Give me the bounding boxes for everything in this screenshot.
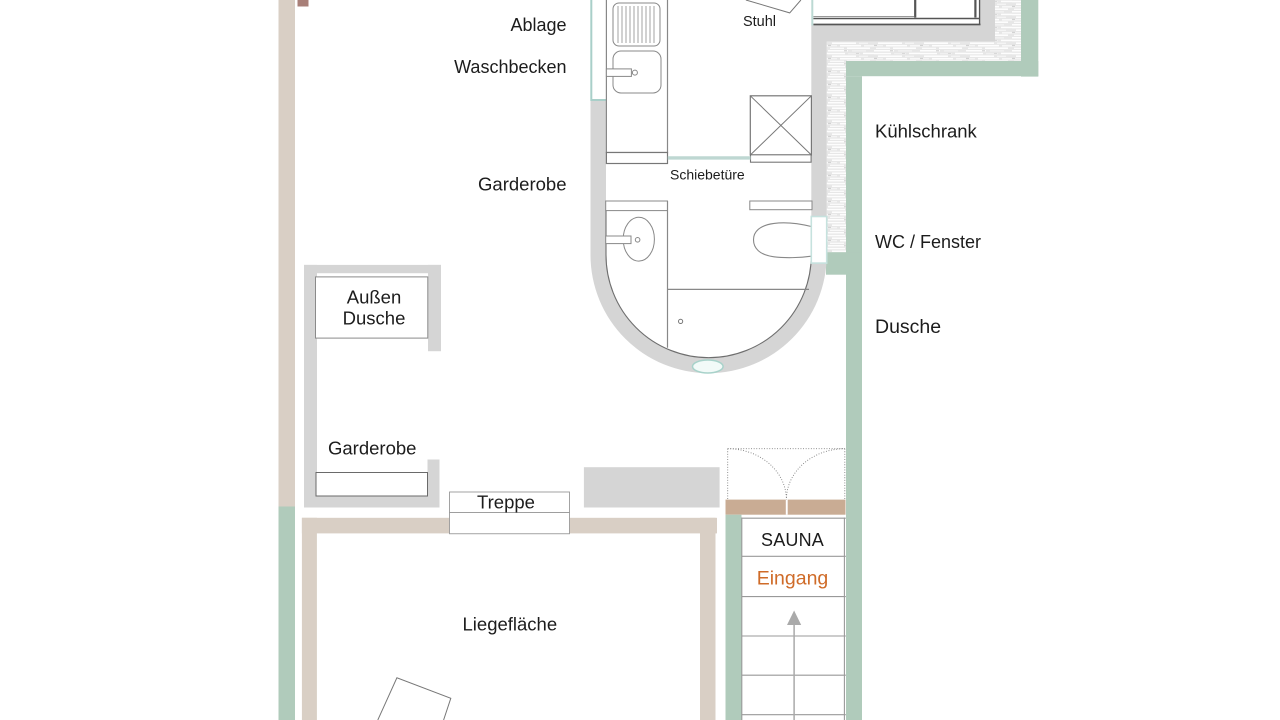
svg-text:Garderobe: Garderobe [478, 174, 566, 195]
svg-text:Eingang: Eingang [757, 568, 829, 590]
svg-text:Kühlschrank: Kühlschrank [875, 121, 978, 142]
svg-text:Garderobe: Garderobe [328, 438, 416, 459]
svg-text:Außen: Außen [347, 287, 402, 308]
svg-text:Treppe: Treppe [477, 492, 535, 513]
svg-text:Waschbecken: Waschbecken [454, 57, 566, 77]
svg-text:Liegefläche: Liegefläche [463, 614, 558, 635]
svg-text:WC / Fenster: WC / Fenster [875, 232, 981, 252]
svg-text:Stuhl: Stuhl [743, 14, 776, 30]
svg-text:Schiebetüre: Schiebetüre [670, 167, 745, 183]
svg-text:Dusche: Dusche [343, 307, 406, 328]
svg-text:SAUNA: SAUNA [761, 530, 824, 550]
svg-text:Ablage: Ablage [510, 15, 566, 35]
svg-text:Dusche: Dusche [875, 316, 941, 338]
